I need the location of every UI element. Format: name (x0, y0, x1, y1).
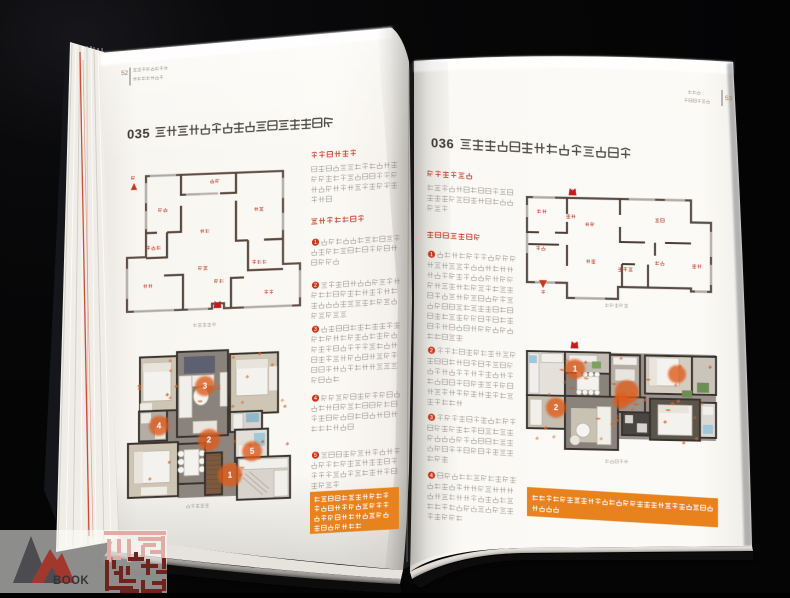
svg-text:1: 1 (573, 365, 578, 374)
svg-text:52: 52 (121, 70, 129, 77)
svg-text:2: 2 (430, 348, 433, 354)
svg-text:035: 035 (127, 126, 150, 142)
svg-text:5: 5 (250, 447, 255, 456)
svg-text:036: 036 (431, 135, 454, 151)
svg-text:4: 4 (157, 421, 162, 430)
svg-text:2: 2 (314, 283, 317, 289)
svg-text:5: 5 (314, 453, 317, 459)
svg-text:2: 2 (207, 435, 212, 444)
svg-text:2: 2 (554, 403, 559, 412)
svg-text:3: 3 (314, 327, 317, 333)
svg-text:1: 1 (314, 240, 317, 246)
svg-text:BOOK: BOOK (53, 575, 89, 587)
svg-text:1: 1 (430, 252, 433, 258)
svg-text:3: 3 (430, 415, 433, 421)
svg-text:3: 3 (203, 382, 208, 391)
svg-text:4: 4 (430, 473, 433, 479)
svg-text:4: 4 (314, 396, 317, 402)
svg-text:53: 53 (725, 95, 733, 102)
